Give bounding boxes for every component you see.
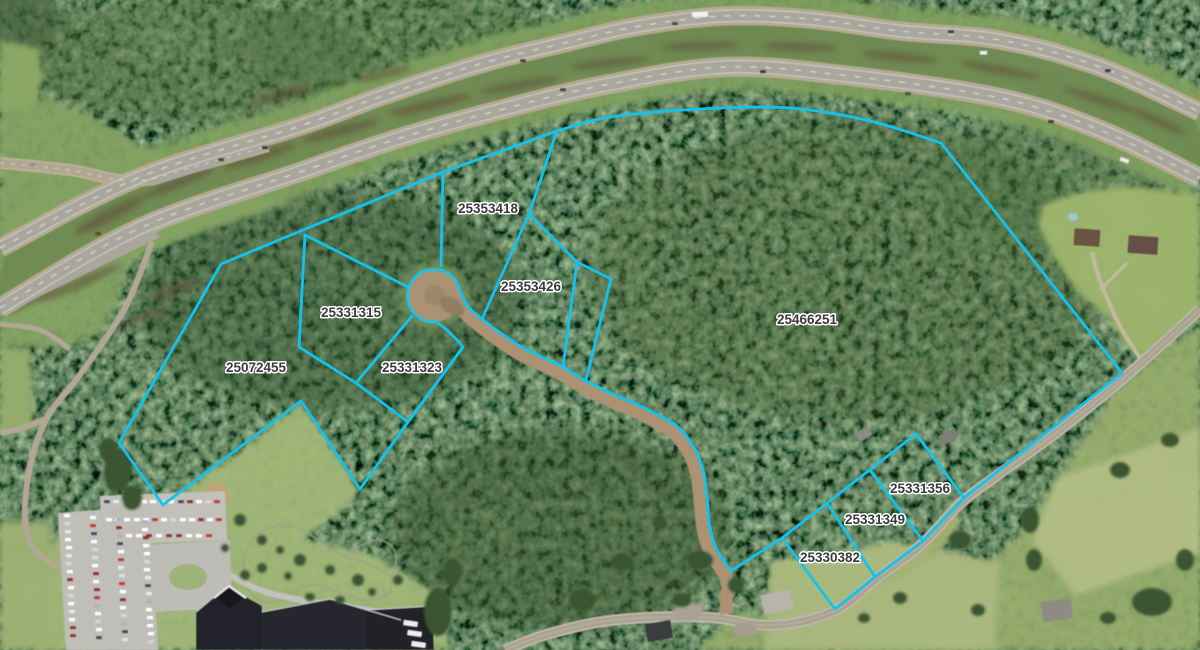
svg-text:25331356: 25331356 <box>890 481 951 496</box>
svg-text:25353426: 25353426 <box>501 279 562 294</box>
svg-text:25072455: 25072455 <box>226 360 287 375</box>
svg-text:25330382: 25330382 <box>800 550 860 565</box>
svg-text:25331349: 25331349 <box>845 512 905 527</box>
svg-text:25331315: 25331315 <box>321 305 382 320</box>
svg-text:25331323: 25331323 <box>382 360 443 375</box>
svg-text:25353418: 25353418 <box>458 201 519 216</box>
svg-text:25466251: 25466251 <box>777 312 838 327</box>
